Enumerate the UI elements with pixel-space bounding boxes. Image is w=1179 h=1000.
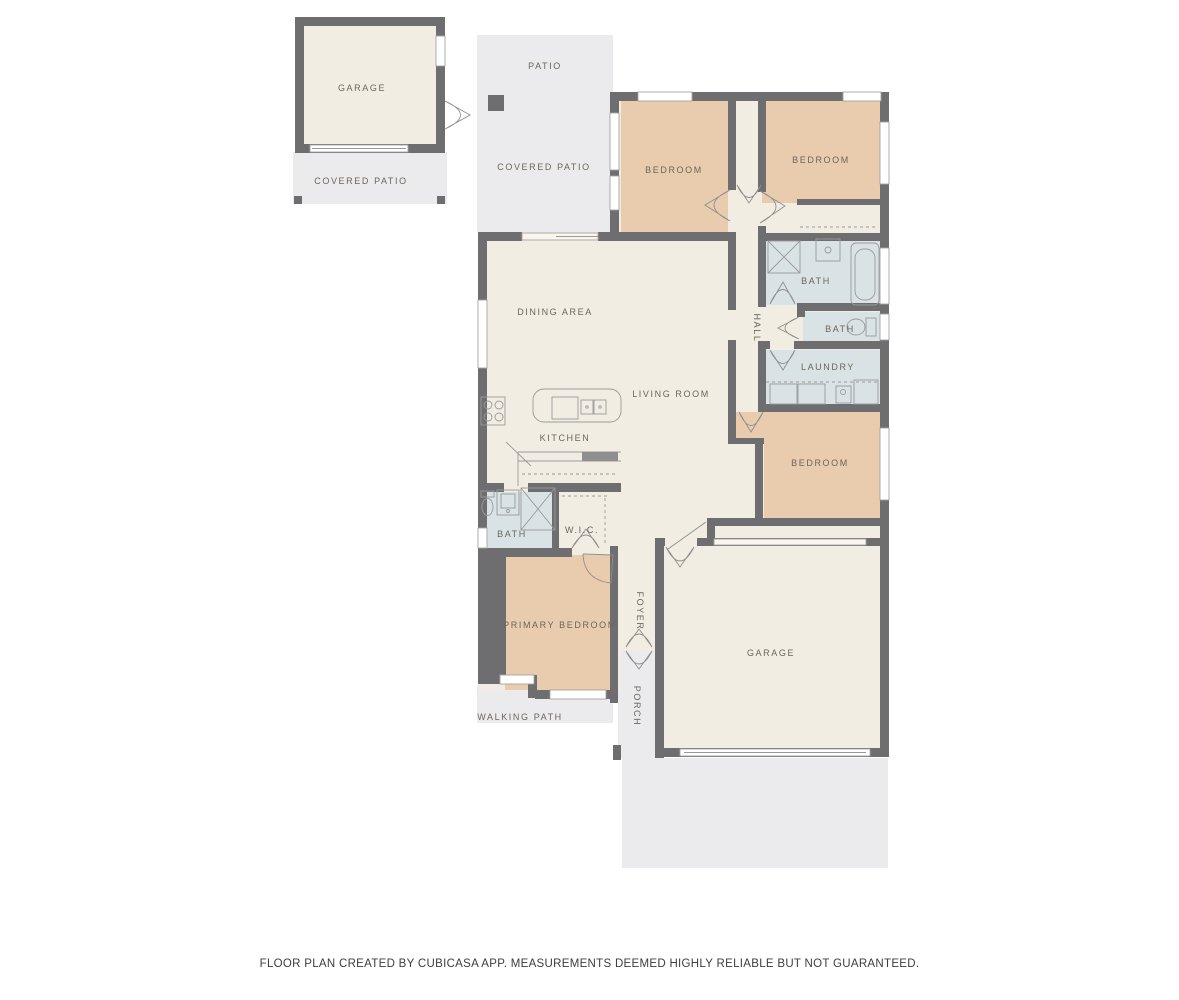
window (610, 176, 619, 210)
label-bedroom-top-right: BEDROOM (792, 155, 850, 165)
wall (478, 555, 506, 676)
patio-post (437, 196, 445, 204)
label-bedroom-right: BEDROOM (791, 458, 849, 468)
wall (655, 546, 664, 758)
label-bedroom-top-left: BEDROOM (645, 165, 703, 175)
label-bath-1: BATH (801, 276, 831, 286)
label-living-room: LIVING ROOM (632, 389, 710, 399)
window (610, 113, 619, 170)
label-covered-patio: COVERED PATIO (497, 162, 590, 172)
wall (728, 100, 736, 190)
wall (528, 483, 621, 492)
window (500, 675, 534, 684)
wall (797, 199, 880, 205)
label-porch: PORCH (632, 686, 642, 727)
label-primary-bedroom: PRIMARY BEDROOM (503, 620, 617, 630)
wall (755, 443, 763, 518)
wall (797, 303, 888, 311)
bedroom-right-closet (736, 443, 757, 515)
floor-plan-drawing (0, 0, 1179, 1000)
window (843, 92, 881, 101)
window (478, 528, 487, 548)
label-hall: HALL (752, 314, 762, 343)
driveway-area (622, 758, 888, 868)
label-walking-path: WALKING PATH (477, 712, 563, 722)
wall (758, 100, 766, 192)
wall (478, 232, 522, 241)
label-patio: PATIO (528, 61, 562, 71)
floor-plan-page: GARAGE COVERED PATIO PATIO COVERED PATIO… (0, 0, 1179, 1000)
label-wic: W.I.C. (565, 525, 599, 535)
window (436, 36, 445, 66)
window (880, 248, 889, 304)
counter-appliance-icon (582, 452, 618, 461)
window (550, 690, 606, 699)
wall (758, 341, 766, 412)
label-detached-covered-patio: COVERED PATIO (314, 176, 407, 186)
wall (758, 233, 888, 241)
wall (613, 745, 621, 760)
wall (295, 17, 304, 153)
patio-post (488, 95, 504, 111)
wall (728, 340, 736, 404)
wall (728, 404, 736, 442)
room-bedroom-top-right (762, 100, 880, 203)
label-foyer: FOYER (635, 591, 645, 630)
wall (762, 404, 888, 412)
label-primary-bath: BATH (497, 529, 527, 539)
window (478, 300, 487, 368)
wall (797, 303, 805, 317)
window (880, 428, 889, 500)
label-laundry: LAUNDRY (801, 362, 855, 372)
window (638, 92, 692, 101)
wall (598, 232, 736, 241)
label-bath-2: BATH (825, 324, 855, 334)
wall (880, 518, 889, 757)
room-laundry (766, 350, 880, 404)
door-swing-detached-garage (445, 101, 470, 129)
label-dining-area: DINING AREA (517, 307, 593, 317)
wall (794, 341, 888, 349)
garage-interior-opening (714, 539, 866, 545)
wall (552, 492, 559, 548)
garage-floor (655, 526, 888, 757)
wall (295, 17, 445, 26)
window (880, 314, 889, 340)
window (880, 122, 889, 184)
label-detached-garage: GARAGE (338, 83, 386, 93)
disclaimer-text: FLOOR PLAN CREATED BY CUBICASA APP. MEAS… (0, 958, 1179, 970)
wall (707, 518, 888, 526)
label-garage: GARAGE (747, 648, 795, 658)
wall (655, 538, 665, 546)
bedroom-top-right-closet (797, 205, 880, 235)
label-kitchen: KITCHEN (540, 433, 591, 443)
wall (728, 232, 736, 310)
patio-post (294, 196, 302, 204)
